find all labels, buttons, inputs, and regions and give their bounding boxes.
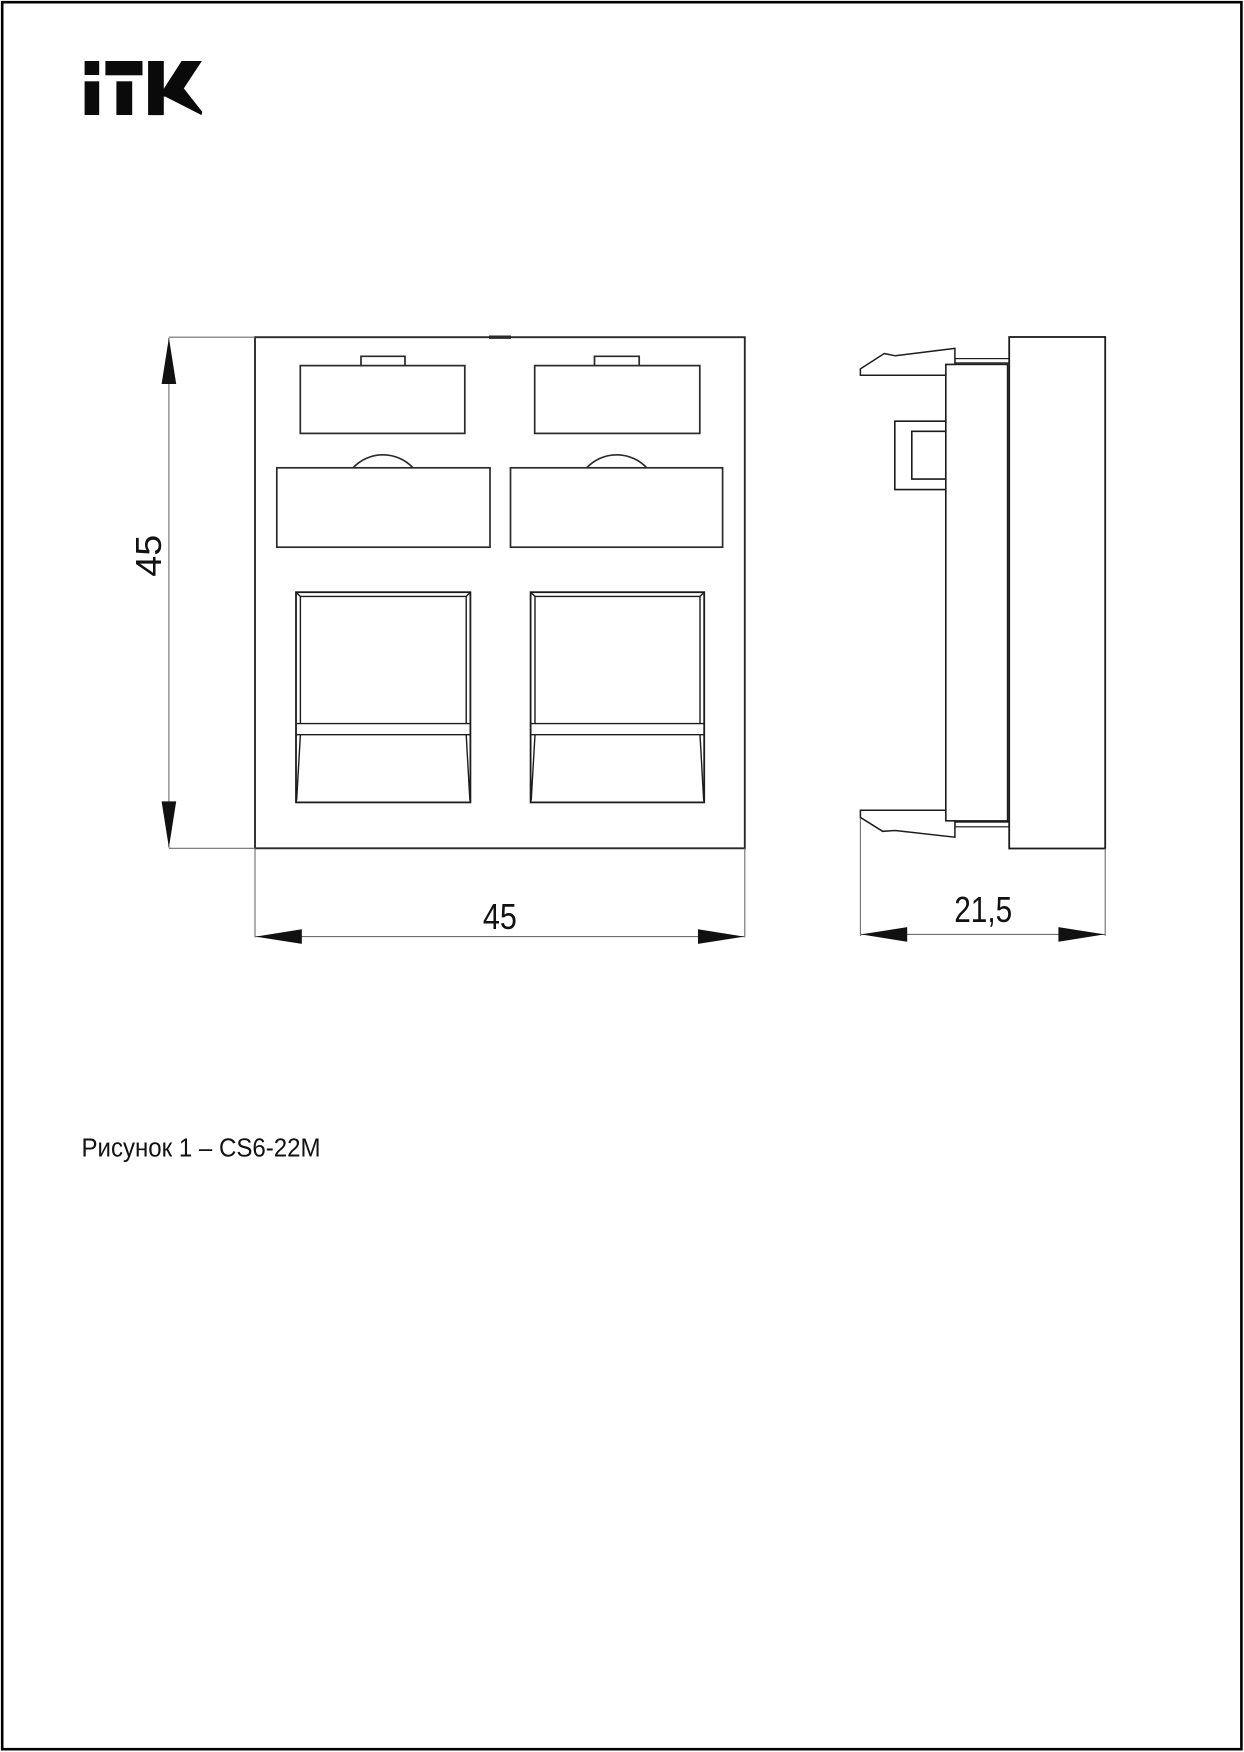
svg-text:45: 45 [128,535,169,577]
svg-text:Рисунок 1 – CS6-22M: Рисунок 1 – CS6-22M [82,1133,321,1163]
svg-text:45: 45 [483,896,517,937]
svg-text:21,5: 21,5 [954,889,1012,930]
